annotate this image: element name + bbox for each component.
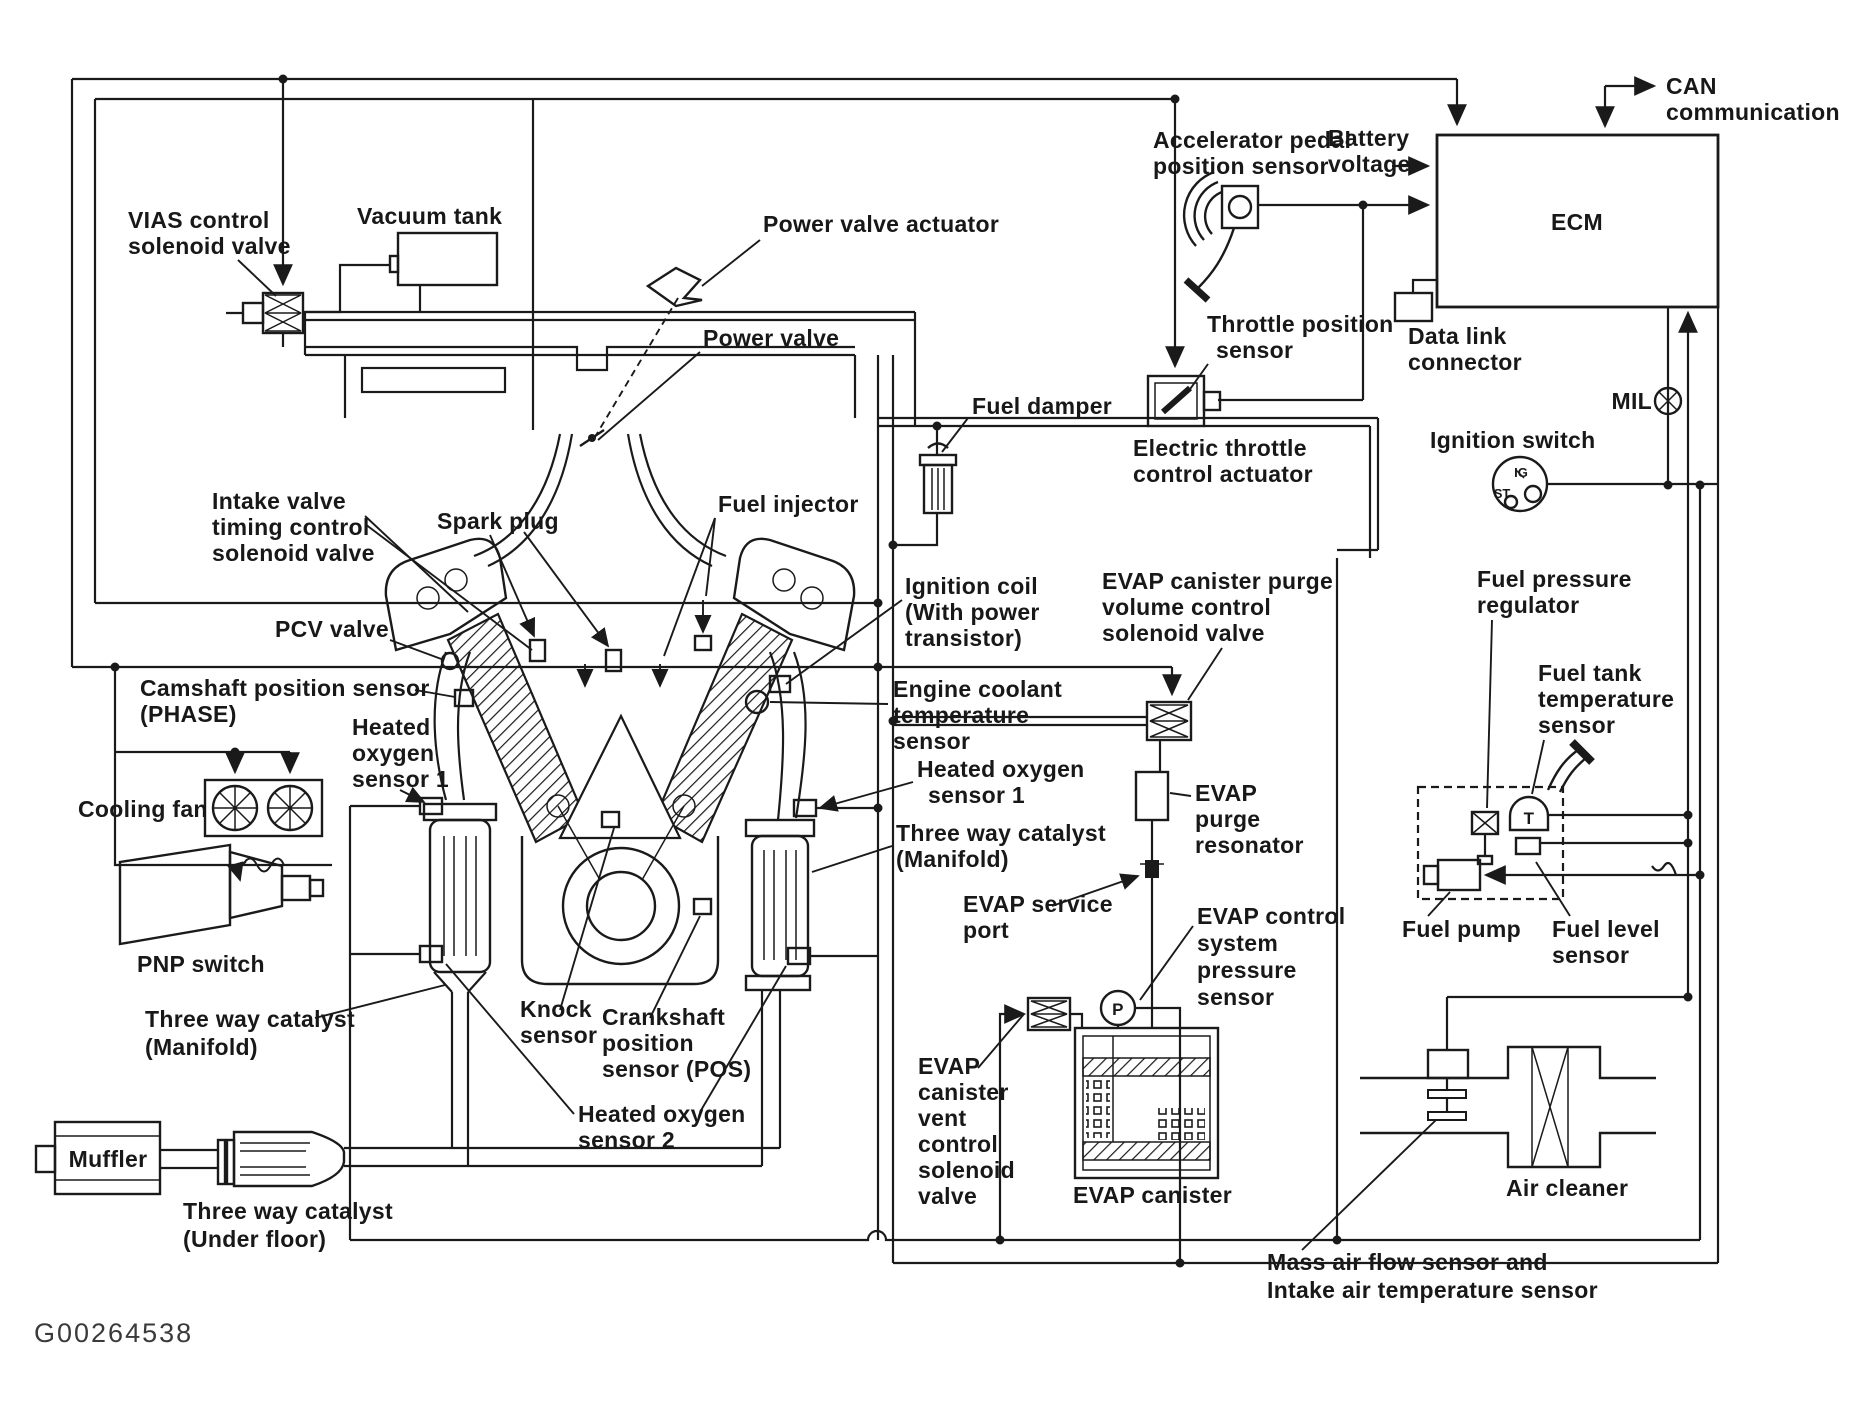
throttle-position-label: Throttle positionsensor xyxy=(1207,311,1394,363)
ignition-coil-label: Ignition coil(With powertransistor) xyxy=(905,573,1040,651)
vias-control-solenoid-valve xyxy=(226,293,303,347)
vias-label: VIAS controlsolenoid valve xyxy=(128,207,291,259)
fuel-pump-label: Fuel pump xyxy=(1402,916,1521,942)
svg-text:control: control xyxy=(918,1131,998,1157)
svg-text:(With power: (With power xyxy=(905,599,1040,625)
ignition-switch-label: Ignition switch xyxy=(1430,427,1596,453)
power-valve-actuator-label: Power valve actuator xyxy=(763,211,999,237)
svg-text:solenoid: solenoid xyxy=(918,1157,1015,1183)
svg-text:canister: canister xyxy=(918,1079,1009,1105)
svg-text:Heated oxygen: Heated oxygen xyxy=(578,1101,746,1127)
ignition-st-mark: ST xyxy=(1494,486,1511,501)
svg-text:purge: purge xyxy=(1195,806,1260,832)
svg-text:connector: connector xyxy=(1408,349,1522,375)
engine-vacuum-diagram: ECM IG ST xyxy=(0,0,1869,1415)
svg-text:sensor: sensor xyxy=(1197,984,1274,1010)
fuel-level-sensor-icon xyxy=(1516,838,1540,854)
fuel-damper-icon xyxy=(920,444,956,514)
svg-text:Ignition coil: Ignition coil xyxy=(905,573,1038,599)
can-communication-label: CANcommunication xyxy=(1666,73,1840,125)
power-valve-label: Power valve xyxy=(703,325,839,351)
svg-text:temperature: temperature xyxy=(1538,686,1674,712)
fuel-tank-temperature-sensor-icon: T xyxy=(1510,797,1548,830)
svg-text:solenoid valve: solenoid valve xyxy=(1102,620,1265,646)
svg-text:sensor: sensor xyxy=(1552,942,1629,968)
svg-text:regulator: regulator xyxy=(1477,592,1579,618)
muffler-icon: Muffler xyxy=(36,1122,160,1194)
three-way-catalyst-under-floor-icon xyxy=(160,1132,344,1186)
svg-text:oxygen: oxygen xyxy=(352,740,434,766)
svg-text:(Under floor): (Under floor) xyxy=(183,1226,326,1252)
svg-text:Mass air flow sensor and: Mass air flow sensor and xyxy=(1267,1249,1548,1275)
electric-throttle-label: Electric throttlecontrol actuator xyxy=(1133,435,1313,487)
fuel-damper-label: Fuel damper xyxy=(972,393,1112,419)
muffler-label: Muffler xyxy=(69,1146,148,1172)
svg-text:EVAP canister purge: EVAP canister purge xyxy=(1102,568,1333,594)
twc-under-floor-label: Three way catalyst(Under floor) xyxy=(183,1198,393,1252)
svg-text:solenoid valve: solenoid valve xyxy=(128,233,291,259)
svg-text:position: position xyxy=(602,1030,694,1056)
battery-voltage-label: Batteryvoltage xyxy=(1328,125,1411,177)
evap-service-port-icon xyxy=(1140,860,1164,878)
fuel-tank-temp-label: Fuel tanktemperaturesensor xyxy=(1538,660,1674,738)
svg-text:vent: vent xyxy=(918,1105,967,1131)
heated-oxygen-sensor-2-right-icon xyxy=(788,948,810,964)
ignition-ig-mark: IG xyxy=(1514,465,1528,480)
figure-id: G00264538 xyxy=(34,1318,193,1348)
ho2s2-label: Heated oxygensensor 2 xyxy=(578,1101,746,1153)
svg-text:VIAS control: VIAS control xyxy=(128,207,270,233)
svg-text:sensor: sensor xyxy=(893,728,970,754)
svg-text:communication: communication xyxy=(1666,99,1840,125)
ecm-label: ECM xyxy=(1551,209,1603,235)
evap-purge-resonator-icon xyxy=(1136,772,1168,1028)
svg-text:volume control: volume control xyxy=(1102,594,1271,620)
mil-label: MIL xyxy=(1612,388,1653,414)
data-link-connector-label: Data linkconnector xyxy=(1408,323,1522,375)
ecm-box: ECM xyxy=(1437,135,1718,307)
spark-plug-label: Spark plug xyxy=(437,508,559,534)
maf-label: Mass air flow sensor andIntake air tempe… xyxy=(1267,1249,1598,1303)
svg-text:EVAP: EVAP xyxy=(918,1053,980,1079)
svg-text:pressure: pressure xyxy=(1197,957,1297,983)
twc-manifold-right-label: Three way catalyst(Manifold) xyxy=(896,820,1106,872)
accelerator-pedal-label: Accelerator pedalposition sensor xyxy=(1153,127,1351,179)
svg-text:Crankshaft: Crankshaft xyxy=(602,1004,725,1030)
evap-canister-label: EVAP canister xyxy=(1073,1182,1232,1208)
svg-text:Three way catalyst: Three way catalyst xyxy=(896,820,1106,846)
data-link-connector-icon xyxy=(1395,280,1437,321)
evap-vent-solenoid-icon xyxy=(1028,998,1082,1030)
svg-text:sensor: sensor xyxy=(1538,712,1615,738)
svg-text:Engine coolant: Engine coolant xyxy=(893,676,1062,702)
svg-text:position sensor: position sensor xyxy=(1153,153,1329,179)
diagram-canvas: ECM IG ST xyxy=(0,0,1869,1415)
svg-text:(PHASE): (PHASE) xyxy=(140,701,237,727)
evap-pressure-sensor-label: EVAP controlsystempressuresensor xyxy=(1197,903,1345,1010)
knock-sensor-label: Knocksensor xyxy=(520,996,597,1048)
three-way-catalyst-manifold-left-icon xyxy=(424,804,496,1166)
svg-text:port: port xyxy=(963,917,1009,943)
svg-text:Fuel tank: Fuel tank xyxy=(1538,660,1642,686)
svg-text:Fuel pressure: Fuel pressure xyxy=(1477,566,1632,592)
svg-text:Intake air temperature sensor: Intake air temperature sensor xyxy=(1267,1277,1598,1303)
pressure-sensor-mark: P xyxy=(1112,1000,1124,1019)
svg-text:Electric throttle: Electric throttle xyxy=(1133,435,1307,461)
svg-text:(Manifold): (Manifold) xyxy=(896,846,1009,872)
fuel-level-label: Fuel levelsensor xyxy=(1552,916,1660,968)
svg-text:Throttle position: Throttle position xyxy=(1207,311,1394,337)
evap-purge-resonator-label: EVAPpurgeresonator xyxy=(1195,780,1304,858)
engine-coolant-label: Engine coolanttemperaturesensor xyxy=(893,676,1062,754)
fuel-pump-icon xyxy=(1424,860,1480,890)
evap-purge-volume-control-solenoid-icon xyxy=(1147,702,1191,772)
pcv-valve-label: PCV valve xyxy=(275,616,389,642)
evap-service-port-label: EVAP serviceport xyxy=(963,891,1113,943)
vacuum-tank xyxy=(303,233,497,312)
svg-text:Knock: Knock xyxy=(520,996,592,1022)
svg-text:Heated: Heated xyxy=(352,714,431,740)
intake-valve-timing-label: Intake valvetiming controlsolenoid valve xyxy=(212,488,375,566)
vacuum-tank-label: Vacuum tank xyxy=(357,203,502,229)
svg-text:EVAP control: EVAP control xyxy=(1197,903,1345,929)
svg-text:control actuator: control actuator xyxy=(1133,461,1313,487)
svg-text:sensor (POS): sensor (POS) xyxy=(602,1056,751,1082)
svg-text:solenoid valve: solenoid valve xyxy=(212,540,375,566)
svg-text:sensor 1: sensor 1 xyxy=(352,766,449,792)
pnp-switch-label: PNP switch xyxy=(137,951,265,977)
fuel-pressure-regulator-label: Fuel pressureregulator xyxy=(1477,566,1632,618)
evap-canister-icon xyxy=(1075,1028,1218,1178)
svg-text:Intake valve: Intake valve xyxy=(212,488,346,514)
engine-v6-cross-section xyxy=(386,539,854,984)
svg-text:Heated oxygen: Heated oxygen xyxy=(917,756,1085,782)
svg-text:resonator: resonator xyxy=(1195,832,1304,858)
svg-text:Three way catalyst: Three way catalyst xyxy=(183,1198,393,1224)
cooling-fan-label: Cooling fan xyxy=(78,796,208,822)
svg-text:(Manifold): (Manifold) xyxy=(145,1034,258,1060)
crankshaft-label: Crankshaftpositionsensor (POS) xyxy=(602,1004,751,1082)
svg-text:Accelerator pedal: Accelerator pedal xyxy=(1153,127,1351,153)
svg-text:Three way catalyst: Three way catalyst xyxy=(145,1006,355,1032)
svg-text:sensor 1: sensor 1 xyxy=(928,782,1025,808)
svg-text:transistor): transistor) xyxy=(905,625,1022,651)
svg-text:sensor 2: sensor 2 xyxy=(578,1127,675,1153)
svg-text:Fuel level: Fuel level xyxy=(1552,916,1660,942)
air-cleaner-label: Air cleaner xyxy=(1506,1175,1628,1201)
svg-text:sensor: sensor xyxy=(520,1022,597,1048)
air-cleaner-icon xyxy=(1360,1047,1656,1167)
svg-text:voltage: voltage xyxy=(1328,151,1411,177)
pnp-switch-icon xyxy=(120,845,332,944)
mass-air-flow-sensor-icon xyxy=(1428,997,1468,1120)
ho2s1-right-label: Heated oxygensensor 1 xyxy=(917,756,1085,808)
svg-text:timing control: timing control xyxy=(212,514,370,540)
ignition-switch-icon: IG ST xyxy=(1493,457,1547,511)
svg-text:Data link: Data link xyxy=(1408,323,1507,349)
svg-text:CAN: CAN xyxy=(1666,73,1717,99)
svg-text:sensor: sensor xyxy=(1216,337,1293,363)
svg-text:valve: valve xyxy=(918,1183,977,1209)
svg-text:temperature: temperature xyxy=(893,702,1029,728)
three-way-catalyst-manifold-right-icon xyxy=(746,820,814,1166)
evap-purge-valve-label: EVAP canister purgevolume controlsolenoi… xyxy=(1102,568,1333,646)
twc-manifold-left-label: Three way catalyst(Manifold) xyxy=(145,1006,355,1060)
svg-text:Camshaft position sensor: Camshaft position sensor xyxy=(140,675,430,701)
svg-text:EVAP: EVAP xyxy=(1195,780,1257,806)
svg-text:Battery: Battery xyxy=(1328,125,1409,151)
fuel-injector-label: Fuel injector xyxy=(718,491,859,517)
evap-pressure-sensor-icon: P xyxy=(1101,991,1135,1028)
accelerator-pedal-icon xyxy=(1184,172,1258,300)
fuel-pressure-regulator-icon xyxy=(1472,812,1498,864)
svg-text:EVAP service: EVAP service xyxy=(963,891,1113,917)
cooling-fan-icon xyxy=(205,780,322,836)
svg-text:system: system xyxy=(1197,930,1278,956)
tank-temp-mark: T xyxy=(1524,809,1535,828)
